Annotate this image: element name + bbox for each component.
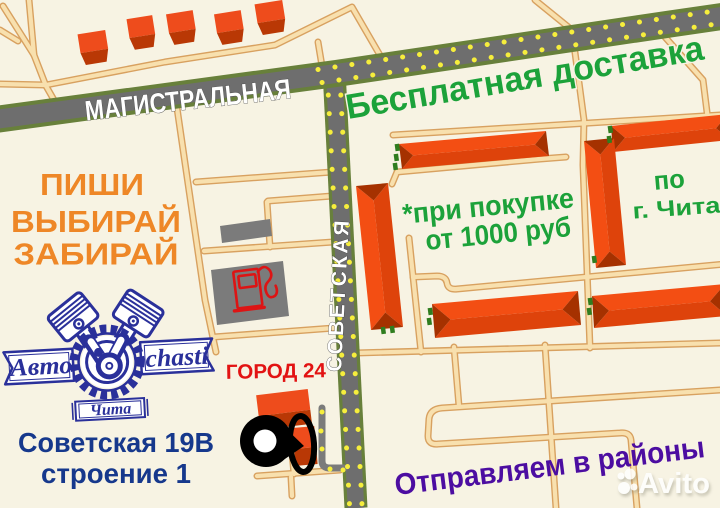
svg-text:строение 1: строение 1 <box>41 458 191 489</box>
svg-text:Советская 19В: Советская 19В <box>18 427 214 458</box>
svg-text:по: по <box>652 163 685 196</box>
svg-text:chasti: chasti <box>145 343 209 373</box>
svg-text:Авто: Авто <box>8 352 73 382</box>
svg-text:Чита: Чита <box>90 400 132 419</box>
svg-text:ЗАБИРАЙ: ЗАБИРАЙ <box>14 236 179 272</box>
svg-text:ГОРОД 24: ГОРОД 24 <box>226 359 327 384</box>
svg-text:ВЫБИРАЙ: ВЫБИРАЙ <box>11 203 181 239</box>
svg-text:Avito: Avito <box>638 468 710 500</box>
svg-text:ПИШИ: ПИШИ <box>40 167 144 202</box>
